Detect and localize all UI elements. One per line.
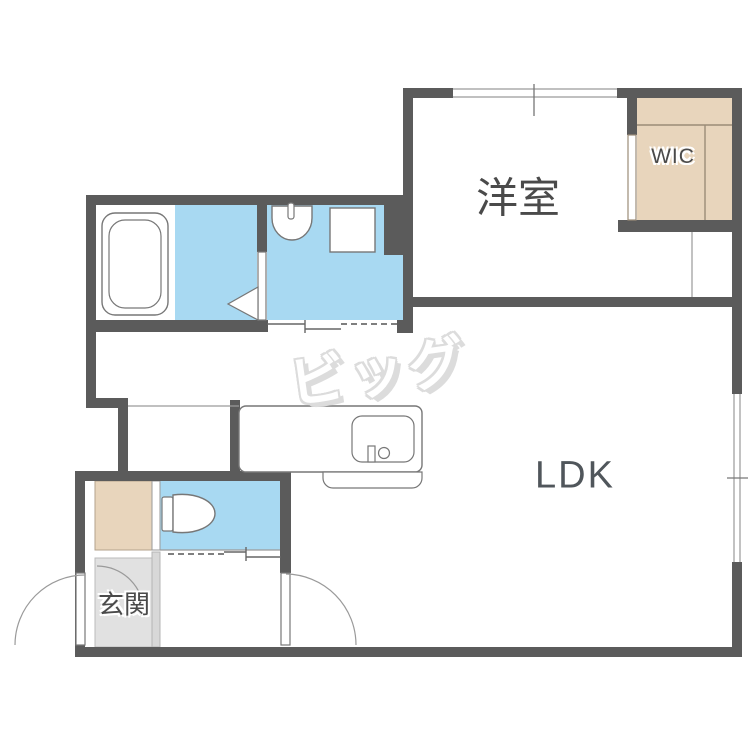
wall — [280, 471, 291, 573]
wall — [413, 297, 742, 307]
front-door-leaf — [76, 573, 85, 645]
wall — [86, 320, 268, 332]
wall — [75, 647, 736, 657]
wall — [86, 195, 96, 408]
entrance-closet — [95, 481, 152, 550]
entrance-step-edge — [152, 552, 160, 647]
kitchen-drain — [379, 448, 390, 459]
kitchen-tap — [368, 446, 375, 462]
ldk-label: LDK — [535, 455, 615, 498]
wall — [618, 220, 742, 232]
front-door-swing-arc — [15, 575, 85, 645]
wall — [403, 88, 453, 98]
wall — [403, 88, 413, 307]
wall — [732, 562, 742, 657]
ldk-door-leaf — [281, 573, 290, 645]
wall — [257, 205, 267, 252]
floorplan: ビッグ 洋室 WIC LDK 玄関 — [0, 0, 750, 750]
bathroom-door-leaf — [258, 252, 266, 320]
wall — [732, 88, 742, 394]
ldk-door-swing-arc — [286, 574, 356, 645]
washbasin-tap — [288, 203, 294, 219]
toilet-tank — [162, 497, 173, 531]
kitchen-lower-counter — [323, 472, 422, 488]
wall — [627, 98, 637, 135]
bedroom-label: 洋室 — [476, 165, 560, 226]
wall — [617, 88, 742, 98]
entrance-label: 玄関 — [98, 585, 150, 622]
wall — [403, 307, 413, 320]
wic-label: WIC — [651, 145, 695, 169]
wall — [118, 398, 128, 473]
washing-machine-pan — [330, 208, 375, 252]
bathtub-inner — [109, 220, 161, 308]
wall — [86, 195, 413, 205]
wic-door-leaf — [628, 135, 636, 220]
closet-side-panel — [152, 481, 160, 550]
